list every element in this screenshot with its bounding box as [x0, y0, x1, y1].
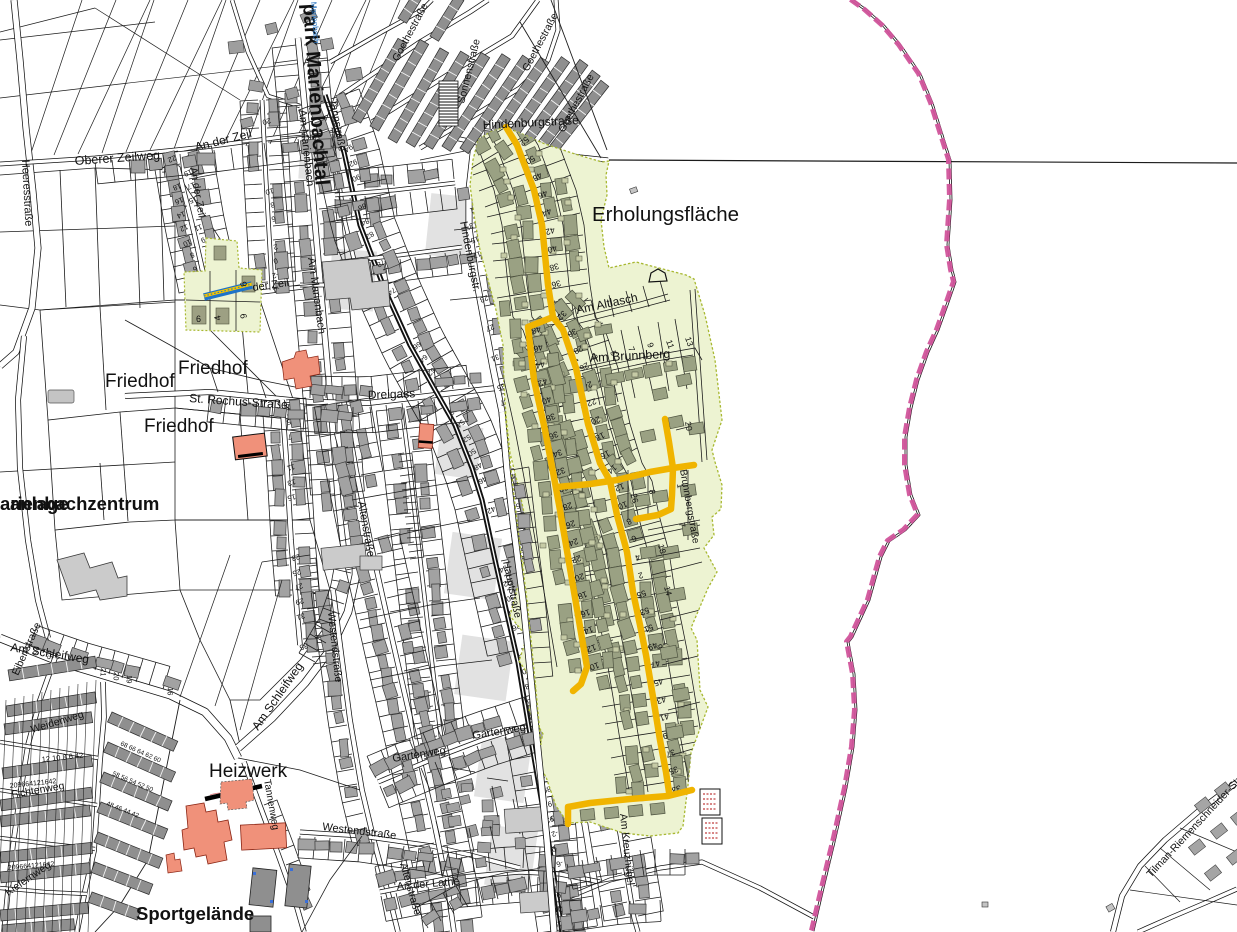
svg-text:20: 20	[683, 421, 695, 432]
svg-text:26: 26	[629, 493, 641, 504]
svg-text:19: 19	[124, 675, 134, 684]
svg-text:Friedhof: Friedhof	[105, 371, 175, 392]
svg-text:Friedhof: Friedhof	[144, 416, 214, 437]
svg-text:Erholungsfläche: Erholungsfläche	[592, 203, 739, 226]
svg-text:Dreigass: Dreigass	[368, 386, 416, 402]
svg-text:16: 16	[165, 687, 175, 696]
svg-text:Heizwerk: Heizwerk	[209, 761, 288, 782]
svg-text:anlage: anlage	[10, 493, 69, 514]
svg-text:6: 6	[196, 314, 201, 324]
svg-text:Friedhof: Friedhof	[178, 358, 248, 379]
svg-text:21: 21	[98, 668, 108, 677]
svg-text:20: 20	[111, 672, 121, 681]
svg-text:Sportgelände: Sportgelände	[136, 903, 254, 924]
